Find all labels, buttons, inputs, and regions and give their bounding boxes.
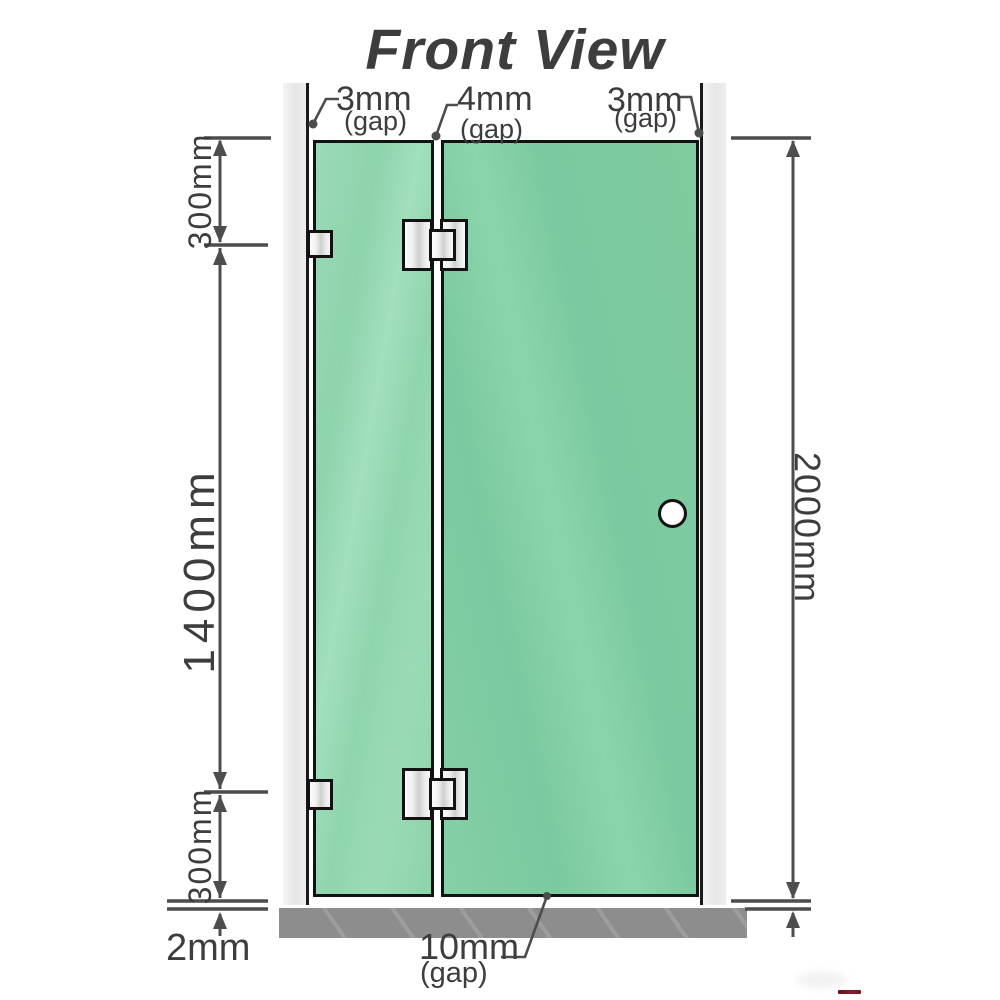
dim-right-overall: 2000mm (789, 452, 825, 604)
bottom-wall-bracket (307, 779, 333, 810)
door-knob (658, 499, 687, 528)
gap-middle-suffix: (gap) (460, 116, 523, 143)
dim-left-middle: 1400mm (178, 466, 222, 673)
bottom-hinge (402, 768, 468, 820)
gap-left-suffix: (gap) (344, 108, 407, 135)
top-hinge-connector (429, 229, 456, 261)
logo-fragment (838, 990, 861, 994)
top-wall-bracket (307, 230, 333, 258)
top-hinge (402, 219, 468, 271)
front-view-diagram: Front View (0, 0, 1000, 1000)
gap-middle-value: 4mm (457, 82, 533, 116)
gap-bottom-suffix: (gap) (420, 959, 488, 988)
diagram-title: Front View (300, 22, 730, 79)
dim-left-top: 300mm (184, 133, 216, 250)
floor-offset-value: 2mm (166, 929, 250, 967)
right-wall-edge-line (700, 83, 703, 905)
left-wall-post (283, 83, 306, 905)
right-wall-post (703, 83, 726, 905)
gap-right-suffix: (gap) (614, 105, 677, 132)
logo-smudge (796, 972, 848, 988)
bottom-hinge-connector (429, 778, 456, 810)
dim-left-bottom: 300mm (184, 788, 216, 905)
